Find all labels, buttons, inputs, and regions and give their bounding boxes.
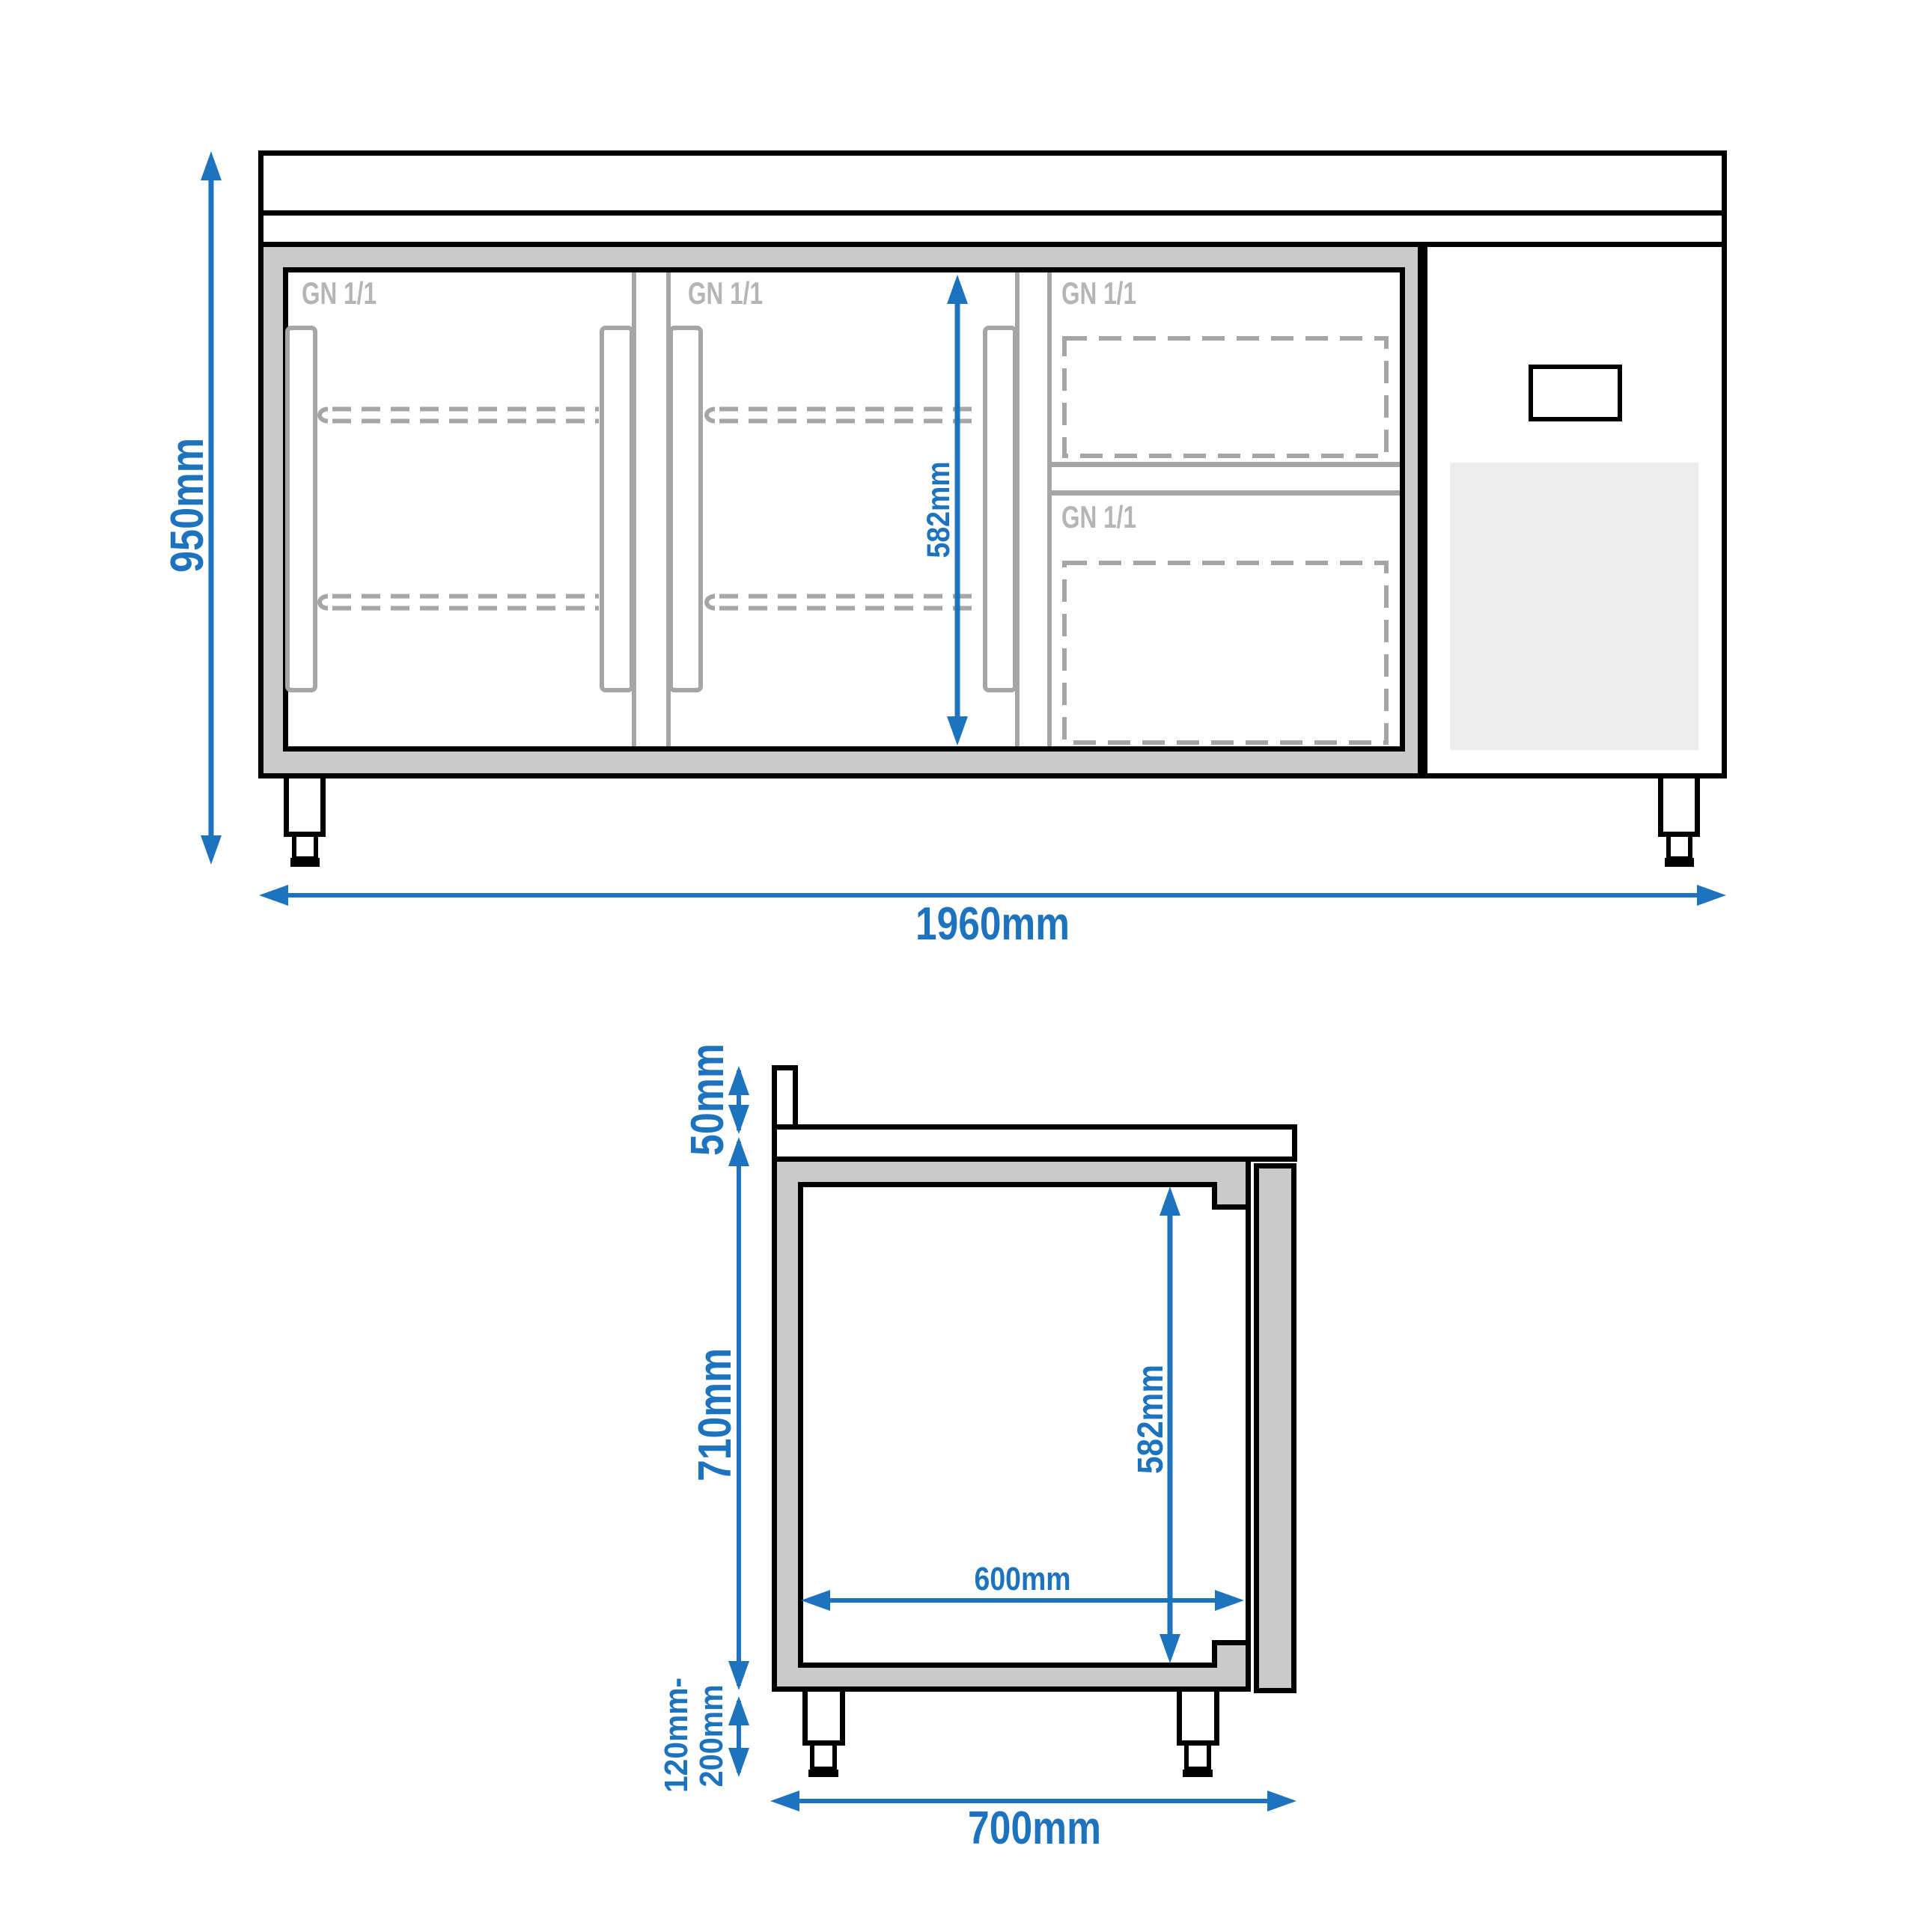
svg-text:120mm-: 120mm- [658, 1677, 695, 1793]
svg-text:50mm: 50mm [682, 1043, 734, 1156]
svg-text:600mm: 600mm [975, 1561, 1071, 1597]
svg-text:700mm: 700mm [968, 1803, 1101, 1854]
svg-text:950mm: 950mm [162, 438, 213, 573]
svg-text:200mm: 200mm [693, 1685, 730, 1788]
svg-text:710mm: 710mm [689, 1348, 741, 1481]
svg-text:GN 1/1: GN 1/1 [1061, 275, 1136, 311]
svg-text:582mm: 582mm [921, 462, 957, 558]
svg-text:GN 1/1: GN 1/1 [1061, 499, 1136, 534]
svg-text:1960mm: 1960mm [915, 898, 1070, 950]
svg-text:582mm: 582mm [1131, 1365, 1171, 1474]
svg-text:GN 1/1: GN 1/1 [688, 275, 763, 311]
svg-text:GN 1/1: GN 1/1 [302, 275, 377, 311]
